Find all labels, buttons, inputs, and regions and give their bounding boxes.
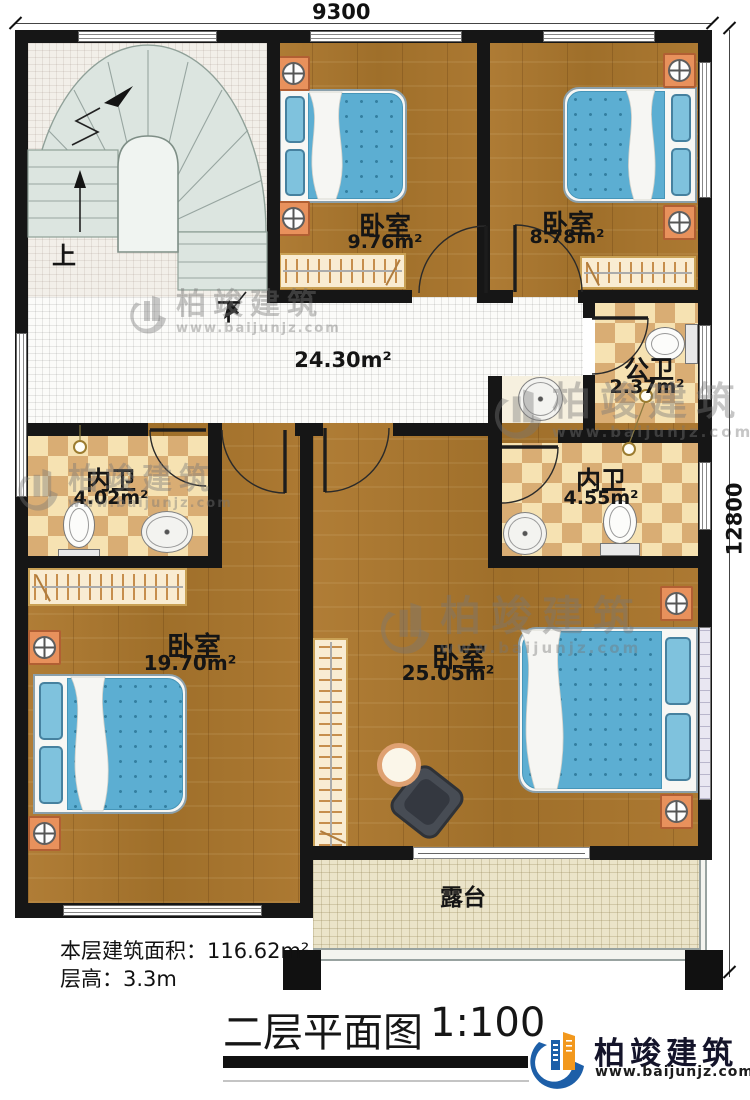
room-label-bed3-area: 25.05m²	[402, 661, 495, 685]
room-label-ensuiteL-area: 4.02m²	[74, 487, 149, 509]
dimension-label-width: 9300	[312, 0, 370, 24]
room-label-bed2-area: 8.78m²	[530, 226, 605, 248]
floor-height-text: 层高：3.3m	[60, 963, 177, 993]
stair-up-label: 上	[52, 236, 76, 271]
brand-url: www.baijunjz.com	[595, 1064, 750, 1080]
room-label-bed4-area: 19.70m²	[144, 651, 237, 675]
terrace-label: 露台	[440, 878, 486, 912]
room-label-publicbath-area: 2.37m²	[610, 376, 685, 398]
hall-area-label: 24.30m²	[294, 348, 392, 372]
page-title: 二层平面图	[223, 1000, 423, 1058]
title-underline-bar	[223, 1056, 528, 1068]
brand-logo-icon	[524, 1026, 590, 1090]
room-label-bed1-area: 9.76m²	[348, 231, 423, 253]
stair-down-label: 下	[217, 292, 241, 327]
floor-area-text: 本层建筑面积：116.62m²	[60, 935, 309, 965]
title-underline-thin	[223, 1080, 529, 1082]
dimension-label-height: 12800	[723, 482, 747, 555]
room-label-ensuiteR-area: 4.55m²	[564, 487, 639, 509]
floor-plan-page: { "plan": { "dim_top": "9300", "dim_righ…	[0, 0, 750, 1100]
